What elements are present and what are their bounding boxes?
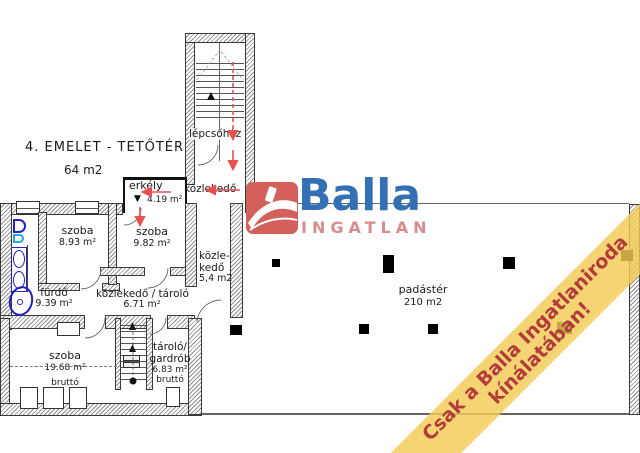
roof-slope-dash: [197, 50, 243, 80]
balla-logo: Balla INGATLAN: [246, 182, 298, 234]
floor-plan-canvas: 4. EMELET - TETŐTÉR 64 m2 lépcsőház közl…: [0, 0, 640, 453]
logo-brand-text: Balla: [298, 174, 421, 218]
route-arrows: [140, 62, 240, 224]
logo-house-icon: [246, 182, 298, 234]
door-arcs: [81, 145, 221, 338]
stair-direction-arrows: [129, 92, 215, 385]
logo-subtitle-text: INGATLAN: [301, 220, 432, 236]
